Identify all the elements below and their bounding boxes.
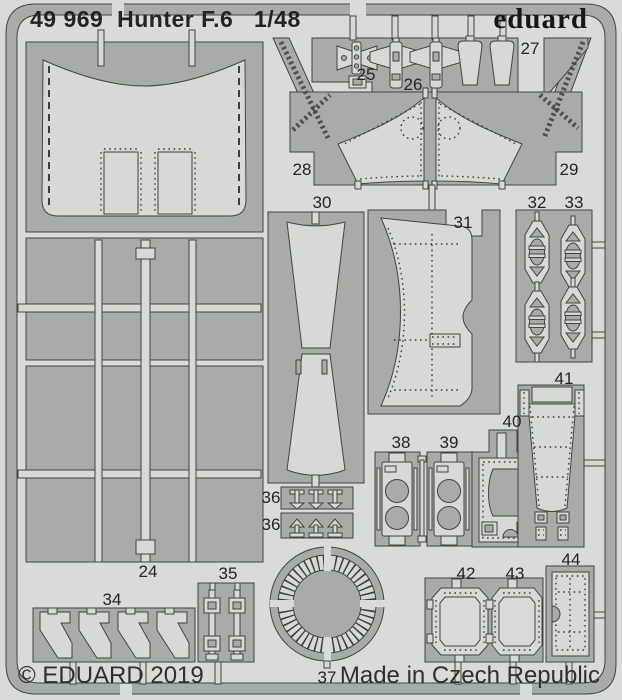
- part-label-36a: 36: [262, 488, 281, 508]
- part-label-25: 25: [357, 65, 376, 85]
- block-31: [368, 210, 500, 414]
- copyright-text: © EDUARD 2019: [18, 662, 204, 690]
- part-label-37: 37: [318, 668, 337, 688]
- catalog-title: 49 969 Hunter F.6 1/48: [30, 6, 301, 33]
- part-label-34: 34: [103, 590, 122, 610]
- part-label-30: 30: [313, 193, 332, 213]
- photoetch-fret-photo: 49 969 Hunter F.6 1/48 eduard © EDUARD 2…: [0, 0, 622, 700]
- block-32-33: [516, 210, 592, 362]
- part-label-27: 27: [521, 39, 540, 59]
- brand-logo: eduard: [493, 3, 588, 36]
- part-label-42: 42: [457, 564, 476, 584]
- block-44: [546, 566, 594, 662]
- part-label-29: 29: [560, 160, 579, 180]
- part-label-33: 33: [565, 193, 584, 213]
- part-label-24: 24: [139, 562, 158, 582]
- part-37-ring: [270, 546, 385, 668]
- part-label-38: 38: [392, 433, 411, 453]
- made-in-text: Made in Czech Republic: [340, 662, 600, 690]
- part-label-28: 28: [293, 160, 312, 180]
- block-36: [281, 487, 353, 538]
- block-35: [198, 583, 254, 662]
- part-label-39: 39: [440, 433, 459, 453]
- part-label-35: 35: [219, 564, 238, 584]
- block-42-43: [425, 578, 543, 662]
- block-34: [33, 608, 195, 662]
- part-label-36b: 36: [262, 515, 281, 535]
- part-label-41: 41: [555, 369, 574, 389]
- part-label-26: 26: [404, 75, 423, 95]
- block-30: [268, 212, 364, 487]
- part-label-44: 44: [562, 550, 581, 570]
- part-label-32: 32: [528, 193, 547, 213]
- part-label-31: 31: [454, 213, 473, 233]
- block-strips-24: [18, 238, 263, 562]
- block-41: [518, 385, 584, 547]
- block-38-39: [375, 452, 472, 546]
- part-label-43: 43: [506, 564, 525, 584]
- fret-artwork: [0, 0, 622, 700]
- part-label-40: 40: [503, 412, 522, 432]
- block-top-left-panel: [26, 30, 263, 232]
